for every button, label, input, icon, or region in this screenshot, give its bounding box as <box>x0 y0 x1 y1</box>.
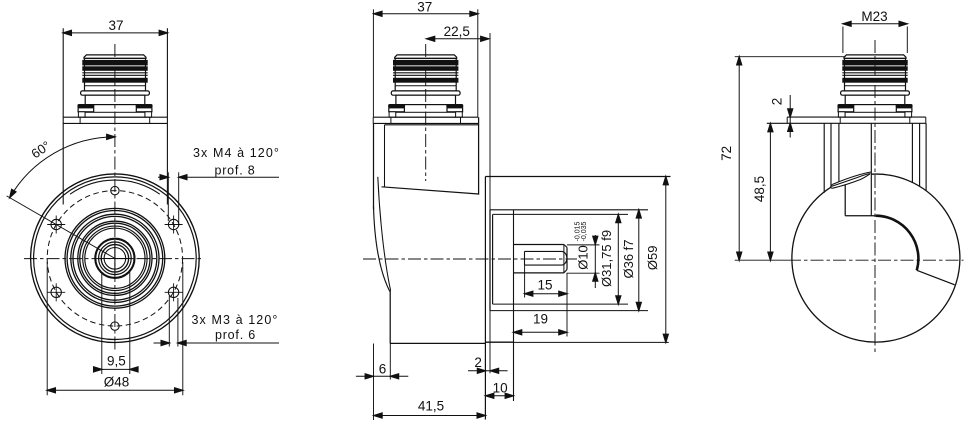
svg-text:37: 37 <box>108 18 123 33</box>
svg-text:48,5: 48,5 <box>752 176 767 202</box>
svg-text:10: 10 <box>493 380 508 395</box>
svg-text:15: 15 <box>537 277 552 292</box>
svg-text:72: 72 <box>719 146 734 161</box>
svg-text:37: 37 <box>417 0 432 15</box>
svg-text:M23: M23 <box>861 9 887 24</box>
svg-text:41,5: 41,5 <box>418 399 444 414</box>
svg-text:19: 19 <box>533 312 548 327</box>
svg-text:3x M4 à 120°: 3x M4 à 120° <box>193 146 280 160</box>
svg-text:Ø10: Ø10 <box>576 245 591 270</box>
svg-text:2: 2 <box>474 355 482 370</box>
svg-text:3x M3 à 120°: 3x M3 à 120° <box>192 313 279 327</box>
svg-text:9,5: 9,5 <box>107 354 126 369</box>
svg-text:-0,035: -0,035 <box>581 221 588 241</box>
svg-text:prof. 6: prof. 6 <box>215 328 256 342</box>
svg-text:Ø36 f7: Ø36 f7 <box>621 239 636 278</box>
svg-text:2: 2 <box>769 98 784 106</box>
svg-text:Ø31,75 f9: Ø31,75 f9 <box>599 230 614 287</box>
svg-text:6: 6 <box>379 362 387 377</box>
svg-text:Ø59: Ø59 <box>645 246 660 271</box>
svg-text:prof. 8: prof. 8 <box>214 164 255 178</box>
svg-text:22,5: 22,5 <box>444 24 470 39</box>
svg-text:Ø48: Ø48 <box>104 375 130 390</box>
